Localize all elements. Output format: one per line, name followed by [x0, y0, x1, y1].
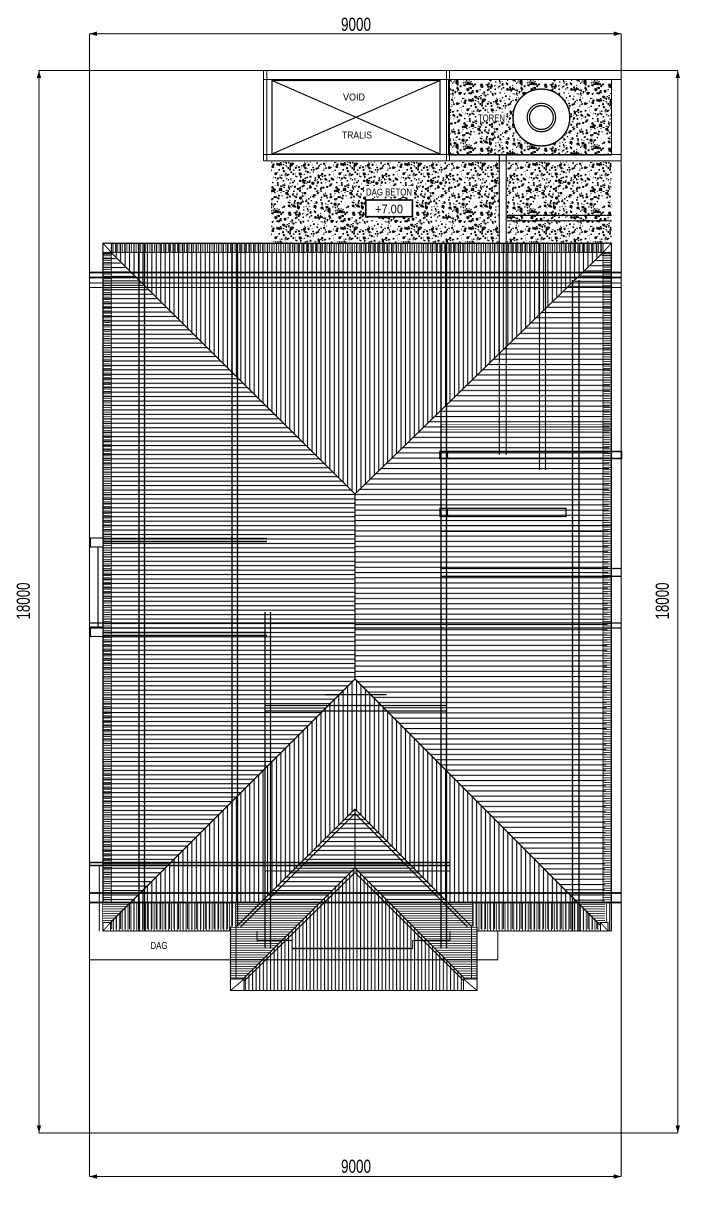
- svg-text:TRALIS: TRALIS: [342, 130, 372, 142]
- svg-text:18000: 18000: [14, 583, 35, 620]
- svg-text:TOREN: TOREN: [478, 114, 505, 125]
- svg-text:DAG: DAG: [151, 940, 168, 952]
- svg-text:9000: 9000: [341, 15, 371, 36]
- svg-text:+7.00: +7.00: [375, 202, 403, 216]
- svg-text:DAG BETON: DAG BETON: [366, 187, 412, 199]
- svg-text:9000: 9000: [341, 1157, 371, 1178]
- svg-text:VOID: VOID: [343, 92, 365, 104]
- svg-text:18000: 18000: [653, 583, 674, 620]
